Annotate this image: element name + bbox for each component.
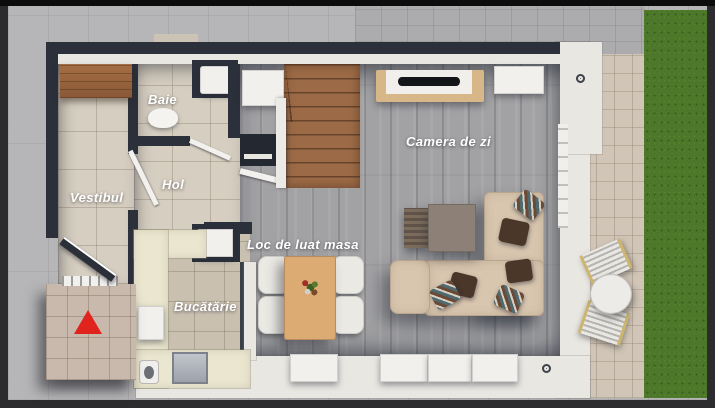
wall-kitchen-dining <box>244 262 256 360</box>
kitchen-sink-basin <box>144 366 154 379</box>
wall-bath-hall <box>134 136 190 146</box>
wardrobe <box>60 64 132 98</box>
stove <box>172 352 208 384</box>
wall-hall-stairhall <box>228 64 240 138</box>
sideboard <box>494 66 544 94</box>
lawn <box>644 10 707 398</box>
stair-stringer <box>276 98 286 188</box>
dining-chair-3 <box>332 256 364 294</box>
window-bottom-4 <box>472 354 518 382</box>
entrance-arrow-icon <box>74 310 102 334</box>
tv <box>398 77 460 86</box>
room-label-baie: Baie <box>148 92 177 107</box>
staircase-winders <box>284 64 360 122</box>
window-bottom-1 <box>290 354 338 382</box>
sofa-pillow-brown-2 <box>505 258 534 283</box>
exterior-wall-top <box>46 42 560 54</box>
understair-step <box>244 154 272 159</box>
toilet <box>148 108 178 128</box>
coffee-table <box>428 204 476 252</box>
door-handle-dot-top <box>576 74 585 83</box>
floor-plan-render: Baie Vestibul Hol Camera de zi Loc de lu… <box>0 0 715 408</box>
sofa-chaise <box>390 260 430 314</box>
patio-table <box>590 274 632 314</box>
room-label-camera-de-zi: Camera de zi <box>406 134 491 149</box>
kitchen-appliance <box>138 306 164 340</box>
room-label-hol: Hol <box>162 177 184 192</box>
dining-chair-4 <box>332 296 364 334</box>
door-handle-dot-bottom <box>542 364 551 373</box>
table-flowers <box>298 276 322 300</box>
wall-trim-top <box>58 54 560 64</box>
room-label-loc-de-luat-masa: Loc de luat masa <box>247 237 359 252</box>
room-label-bucatarie: Bucătărie <box>174 299 237 314</box>
glazed-door-right <box>558 124 568 228</box>
window-bottom-3 <box>428 354 472 382</box>
room-label-vestibul: Vestibul <box>70 190 123 205</box>
window-bottom-2 <box>380 354 428 382</box>
coffee-table-slat-shelf <box>404 208 428 248</box>
